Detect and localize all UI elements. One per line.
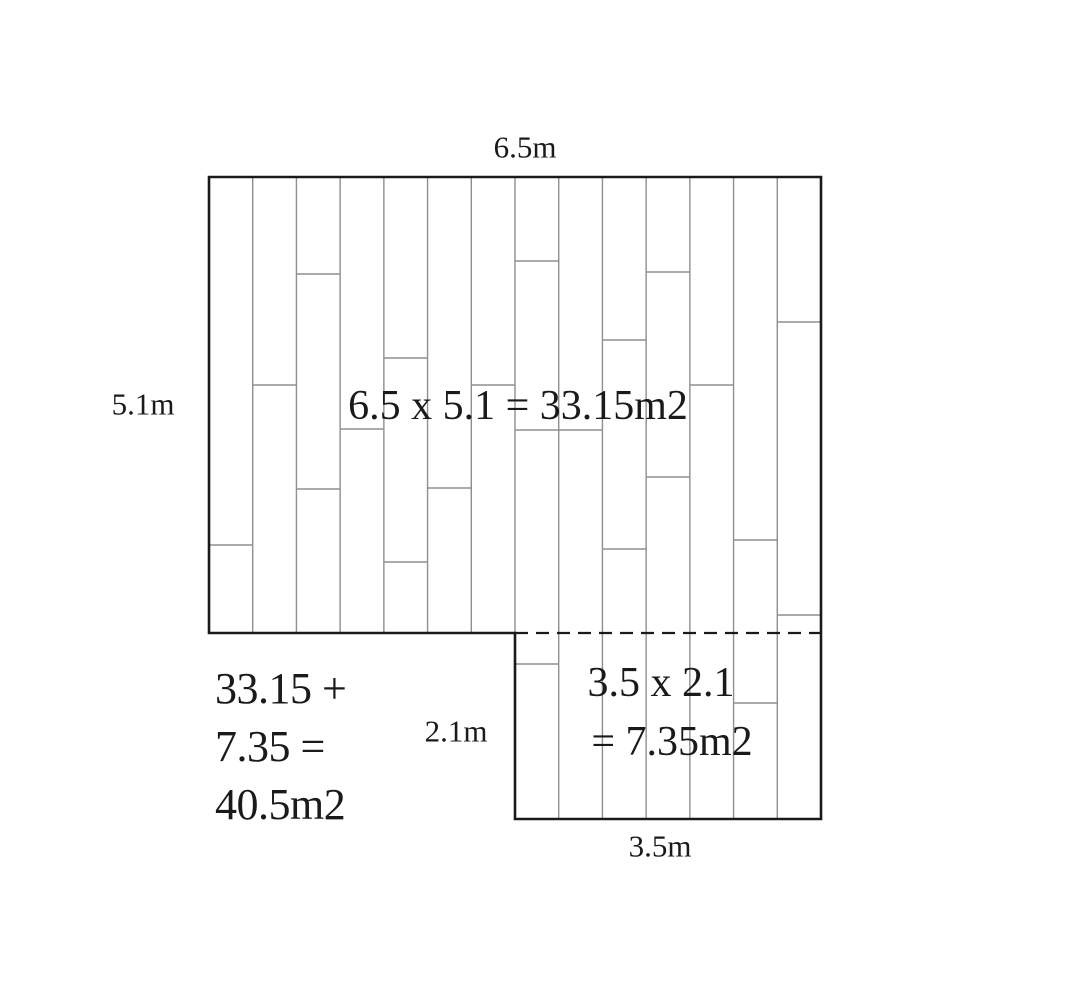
top-width-label: 6.5m <box>494 132 557 163</box>
total-line-2: 7.35 = <box>215 718 346 776</box>
annex-width-label: 3.5m <box>629 831 692 862</box>
annex-area-formula-line1: 3.5 x 2.1 <box>588 662 735 704</box>
left-height-label: 5.1m <box>112 389 175 420</box>
total-line-3: 40.5m2 <box>215 776 346 834</box>
annex-area-formula-line2: = 7.35m2 <box>591 721 752 763</box>
area-diagram-canvas: 6.5m 5.1m 6.5 x 5.1 = 33.15m2 3.5 x 2.1 … <box>0 0 1070 1005</box>
annex-height-label: 2.1m <box>425 716 488 747</box>
main-area-formula: 6.5 x 5.1 = 33.15m2 <box>348 385 688 427</box>
total-line-1: 33.15 + <box>215 660 346 718</box>
total-area-calculation: 33.15 + 7.35 = 40.5m2 <box>215 660 346 834</box>
